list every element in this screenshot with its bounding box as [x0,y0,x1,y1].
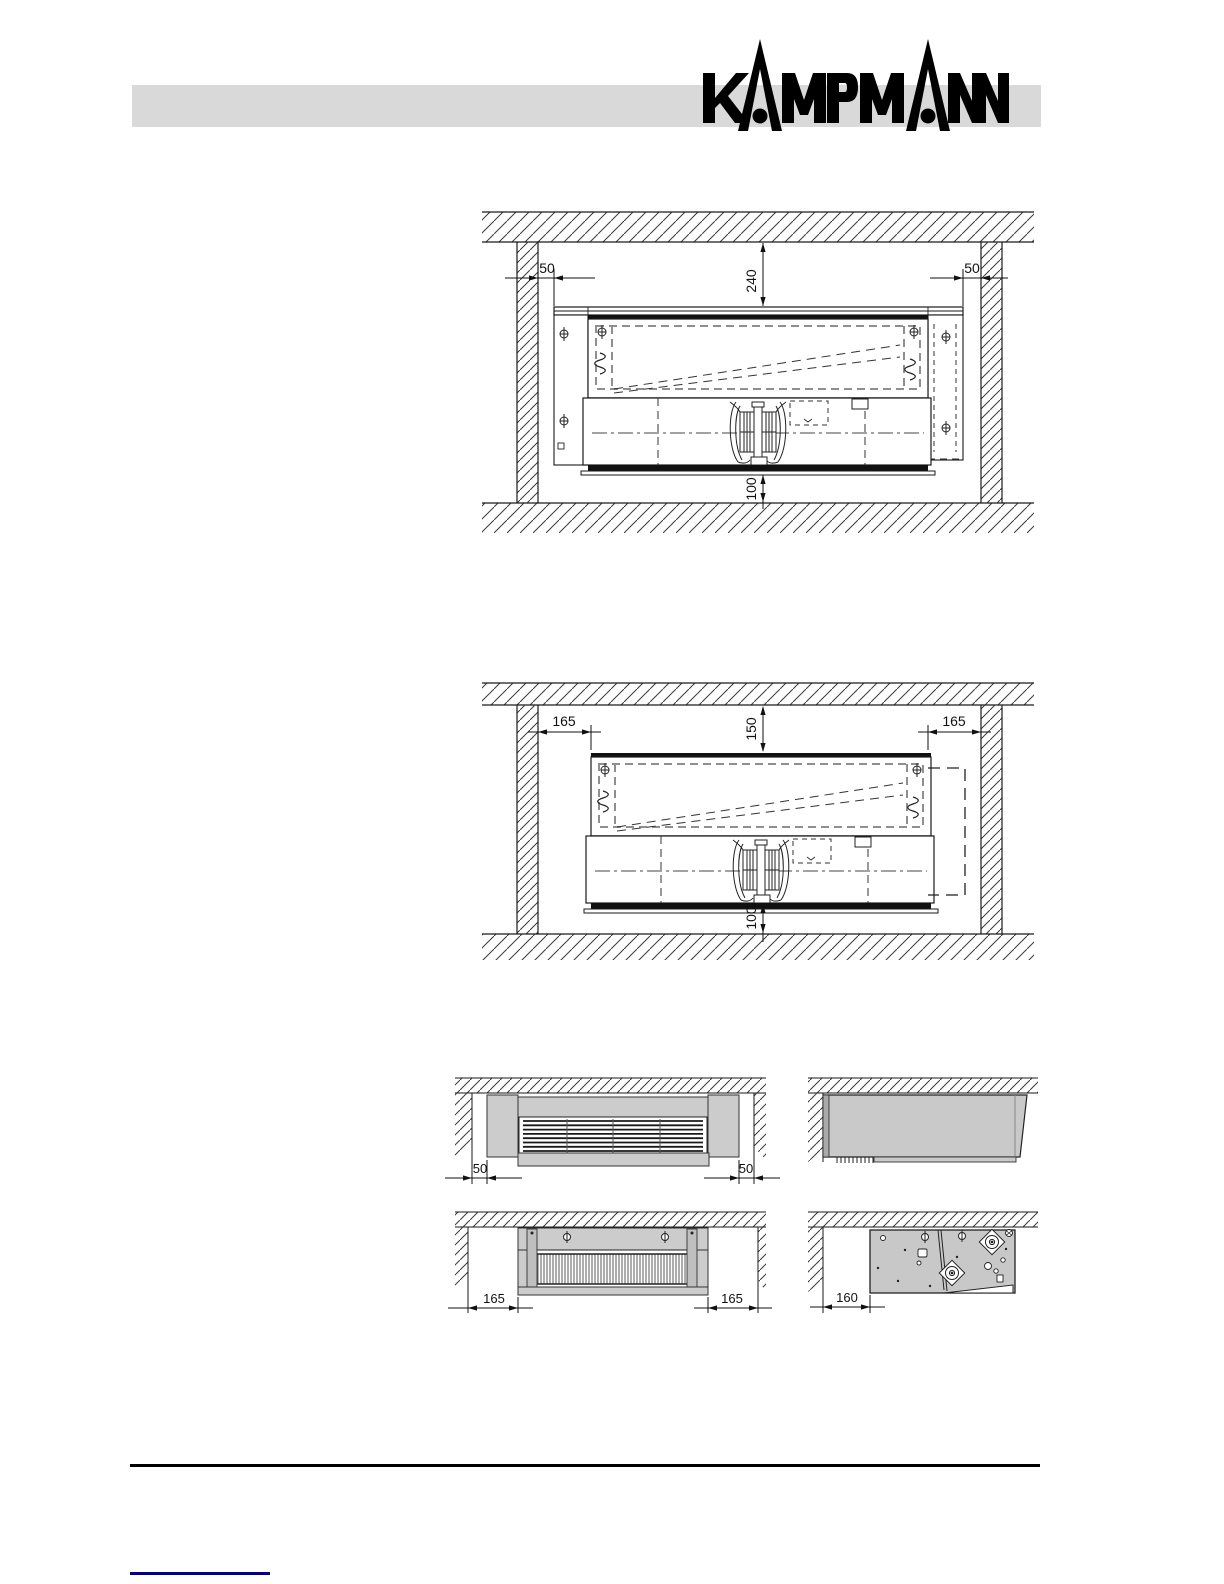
dim-label-gap-right: 165 [942,713,966,729]
ceiling-slab-hatch [482,212,1034,242]
right-wall-hatch [981,242,1002,503]
left-closure-panel [487,1095,518,1157]
dim-label-bottom-clearance: 100 [743,477,759,501]
right-closure-panel [708,1095,739,1157]
left-wall-hatch [517,705,538,934]
unit-section-view [554,307,963,475]
dim-label-gap-left: 160 [836,1290,858,1305]
left-wall-hatch [517,242,538,503]
drawing-ceiling-recess-50: 50 50 240 100 [455,195,1055,545]
floor-slab-hatch [482,934,1034,960]
front-view-165: 165 165 [448,1212,772,1313]
small-installation-views: 50 50 [430,1060,1050,1330]
dim-label-top-clearance: 240 [743,269,759,293]
left-mounting-bracket [527,1229,537,1295]
dim-label-gap-right: 50 [964,260,980,276]
dim-label-bottom-clearance: 100 [743,906,759,930]
dim-label-top-clearance: 150 [743,717,759,741]
footnote-underline [130,1572,270,1575]
heat-exchanger-fins [837,1157,873,1163]
floor-slab-hatch [482,503,1034,533]
drawing-ceiling-recess-165: 165 165 150 100 [455,660,1055,970]
dim-label-gap-right: 50 [739,1161,753,1176]
footer-rule [130,1464,1040,1467]
unit-section-view [584,753,965,913]
dim-label-gap-left: 165 [552,713,576,729]
kampmann-logo [703,39,1019,133]
right-mounting-bracket [687,1229,697,1295]
dim-label-gap-left: 50 [539,260,555,276]
front-view-50: 50 50 [445,1078,780,1184]
side-view-open-160: 160 [808,1212,1038,1313]
dim-label-gap-left: 165 [483,1291,505,1306]
right-wall-hatch [981,705,1002,934]
side-view-closed [808,1078,1038,1163]
dim-label-gap-left: 50 [473,1161,487,1176]
dim-label-gap-right: 165 [721,1291,743,1306]
logo-letters [703,39,1009,131]
ceiling-slab-hatch [482,683,1034,705]
